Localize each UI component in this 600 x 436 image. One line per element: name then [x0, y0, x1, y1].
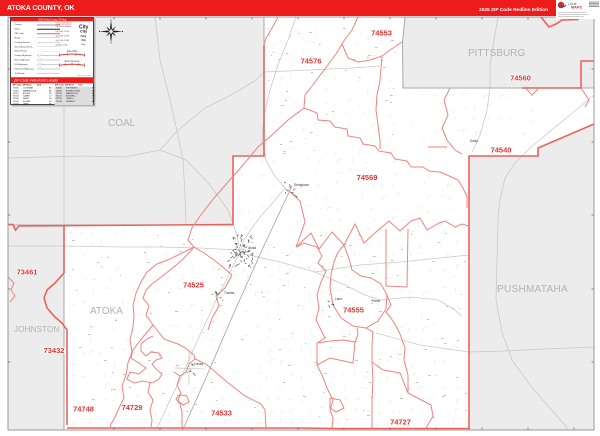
svg-text:MAPS: MAPS [571, 6, 582, 10]
svg-text:73432: 73432 [44, 346, 65, 355]
svg-text:PITTSBURG: PITTSBURG [468, 48, 525, 59]
svg-text:Tushka: Tushka [224, 291, 235, 295]
svg-text:74729: 74729 [122, 403, 143, 412]
svg-text:Stringtown: Stringtown [294, 183, 309, 187]
svg-text:Lane: Lane [335, 297, 342, 301]
svg-text:74727: 74727 [390, 418, 411, 427]
svg-text:74555: 74555 [343, 306, 364, 315]
svg-text:Scale of Kilometers: Scale of Kilometers [65, 60, 80, 63]
svg-text:Atoka: Atoka [248, 246, 256, 250]
svg-text:74533: 74533 [211, 409, 232, 418]
svg-text:74576: 74576 [301, 57, 322, 66]
svg-text:Caney: Caney [194, 362, 204, 366]
svg-text:COAL: COAL [108, 118, 136, 129]
svg-text:74540: 74540 [491, 146, 512, 155]
svg-text:ATOKA: ATOKA [90, 306, 123, 317]
svg-text:JOHNSTON: JOHNSTON [14, 325, 59, 334]
svg-text:73461: 73461 [17, 268, 38, 277]
svg-text:74748: 74748 [73, 405, 94, 414]
svg-text:Farris: Farris [372, 299, 381, 303]
svg-text:74560: 74560 [510, 74, 531, 83]
svg-text:74569: 74569 [357, 173, 378, 182]
svg-text:74553: 74553 [371, 29, 392, 38]
svg-text:Daisy: Daisy [470, 139, 478, 143]
svg-text:74525: 74525 [183, 281, 204, 290]
svg-text:PUSHMATAHA: PUSHMATAHA [497, 284, 568, 295]
